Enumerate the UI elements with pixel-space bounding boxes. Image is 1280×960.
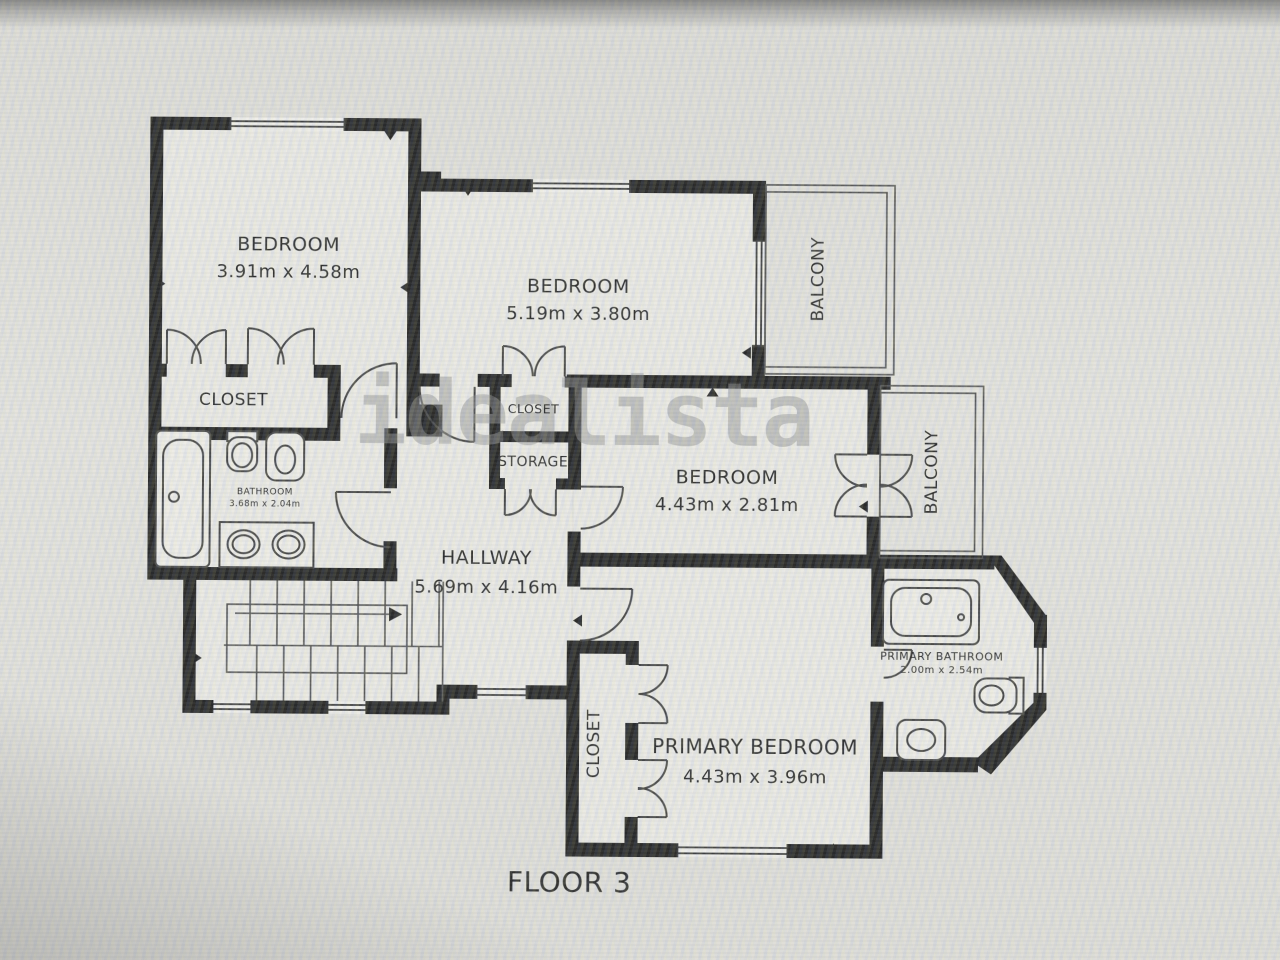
primary-bathroom-dims: 2.00m x 2.54m (900, 665, 983, 677)
closet-3-label: CLOSET (584, 709, 604, 778)
watermark: idealista (354, 361, 814, 467)
bathroom-label: BATHROOM (237, 487, 293, 497)
floor-plan-container: idealista BEDROOM 3.91m x 4.58m BEDROOM … (0, 0, 1280, 960)
primary-bathroom-label: PRIMARY BATHROOM (880, 650, 1003, 664)
balcony-2-label: BALCONY (922, 430, 943, 515)
primary-toilet-icon (974, 677, 1023, 713)
bedroom-1-dims: 3.91m x 4.58m (216, 261, 360, 283)
closet-2-label: CLOSET (508, 401, 560, 416)
storage-label: STORAGE (498, 454, 568, 470)
bathroom-dims: 3.68m x 2.04m (229, 499, 300, 509)
bedroom-1-label: BEDROOM (237, 233, 340, 256)
bidet-icon (266, 432, 304, 480)
primary-bidet-icon (897, 720, 945, 760)
floorplan-photo: idealista BEDROOM 3.91m x 4.58m BEDROOM … (0, 0, 1280, 960)
primary-bedroom-label: PRIMARY BEDROOM (652, 734, 858, 759)
floor-label: FLOOR 3 (507, 865, 632, 899)
bedroom-3-dims: 4.43m x 2.81m (655, 494, 799, 516)
closet-1-label: CLOSET (199, 390, 268, 410)
double-sink-icon (219, 522, 313, 568)
bedroom-2-dims: 5.19m x 3.80m (506, 303, 650, 325)
bathtub-icon (155, 431, 210, 567)
floor-plan-svg: idealista BEDROOM 3.91m x 4.58m BEDROOM … (0, 0, 1280, 960)
primary-bathtub-icon (883, 580, 979, 645)
bedroom-2-label: BEDROOM (527, 275, 630, 298)
primary-bedroom-dims: 4.43m x 3.96m (683, 766, 827, 788)
bedroom-3-label: BEDROOM (676, 466, 779, 489)
hallway-dims: 5.69m x 4.16m (414, 576, 558, 598)
balcony-1-label: BALCONY (808, 237, 829, 322)
hallway-label: HALLWAY (441, 547, 532, 570)
toilet-icon (227, 431, 257, 471)
